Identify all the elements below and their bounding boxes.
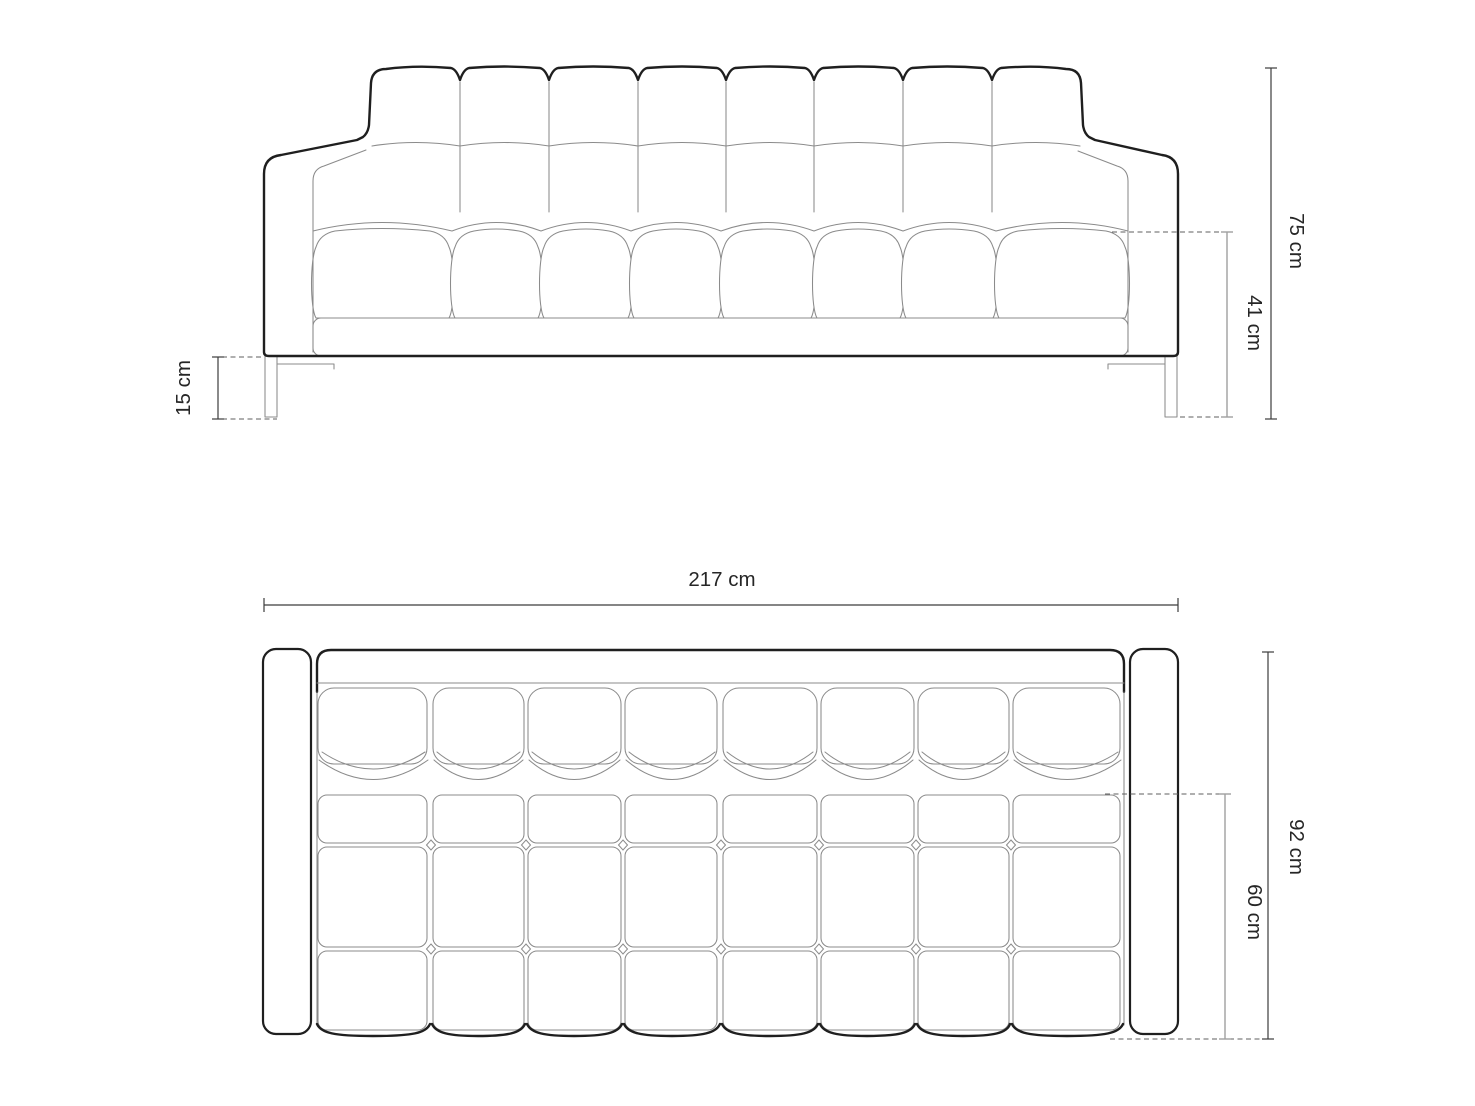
- front-legs: [265, 356, 1177, 417]
- overall-width-label: 217 cm: [688, 568, 755, 591]
- front-seat-cushions: [312, 229, 1130, 319]
- top-body-back-edge: [317, 650, 1124, 692]
- top-seat-grid: [318, 795, 1120, 1030]
- front-back-tuft-lines: [313, 82, 1128, 231]
- seat-depth-dimension-line: [1219, 794, 1231, 1039]
- seat-height-dimension-line: [1221, 232, 1233, 417]
- leg-height-dimension-line: [212, 357, 224, 419]
- leg-height-label: 15 cm: [172, 360, 195, 416]
- overall-height-dimension-line: [1265, 68, 1277, 419]
- overall-height-label: 75 cm: [1285, 213, 1308, 269]
- sofa-dimension-diagram: 75 cm 41 cm 15 cm: [0, 0, 1475, 1106]
- front-base-rail: [313, 318, 1128, 356]
- top-tuft-buttons: [427, 840, 1016, 954]
- overall-width-dimension-line: [264, 598, 1178, 612]
- overall-depth-label: 92 cm: [1285, 819, 1308, 875]
- top-view: 217 cm 92 cm 60 cm: [263, 568, 1308, 1039]
- top-right-armrest: [1130, 649, 1178, 1034]
- overall-depth-dimension-line: [1262, 652, 1274, 1039]
- seat-depth-label: 60 cm: [1243, 884, 1266, 940]
- seat-height-label: 41 cm: [1243, 295, 1266, 351]
- top-left-armrest: [263, 649, 311, 1034]
- front-view: 75 cm 41 cm 15 cm: [172, 67, 1308, 420]
- diagram-canvas: 75 cm 41 cm 15 cm: [0, 0, 1475, 1106]
